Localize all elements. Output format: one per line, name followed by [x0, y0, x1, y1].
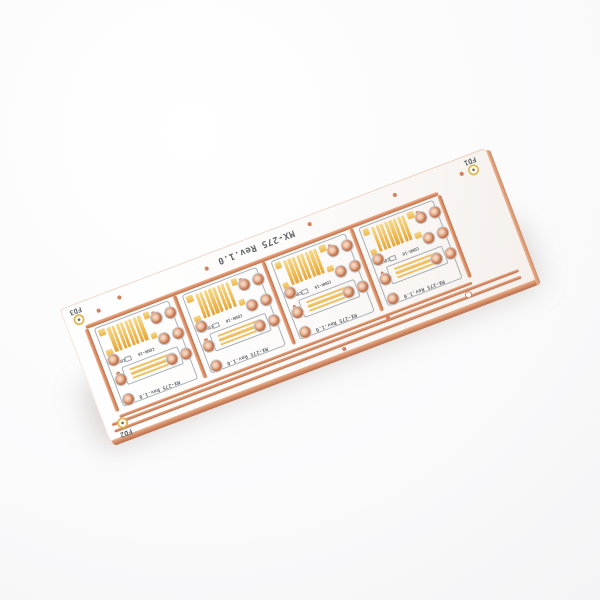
product-photo-backdrop: FD3 FD1 MX-275 Rev.1.0	[0, 0, 600, 600]
through-hole-pad	[434, 225, 451, 242]
corner-pad	[98, 328, 106, 336]
corner-pad	[186, 295, 194, 303]
pcb-panel: FD3 FD1 MX-275 Rev.1.0	[60, 148, 536, 442]
corner-pad	[274, 261, 282, 269]
via-dot	[117, 295, 122, 300]
fiducial-fd1: FD1	[463, 155, 482, 177]
through-hole-pad	[442, 245, 459, 262]
via-dot	[307, 221, 312, 226]
via-dot	[342, 346, 347, 351]
corner-pad	[362, 228, 370, 236]
via-dot	[459, 171, 464, 176]
via-dot	[96, 308, 101, 313]
via-dot	[392, 192, 397, 197]
fiducial-fd3: FD3	[68, 305, 87, 327]
via-dot	[204, 266, 209, 271]
through-hole-pad	[426, 204, 443, 221]
